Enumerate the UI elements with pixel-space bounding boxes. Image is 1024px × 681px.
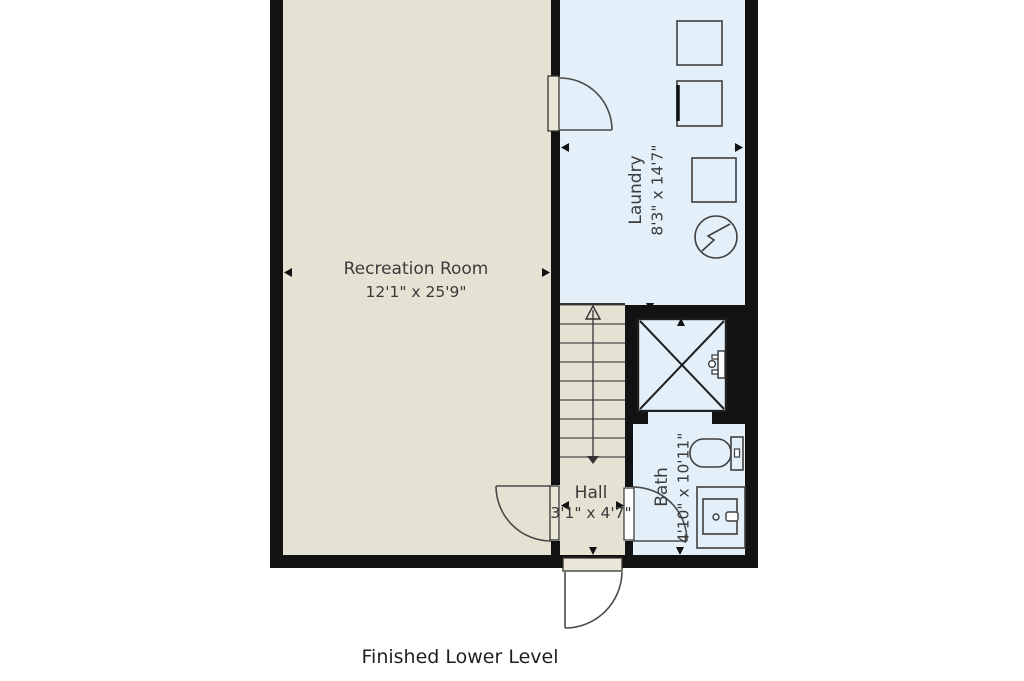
- recreation-room-dims: 12'1" x 25'9": [366, 283, 467, 301]
- floorplan-page: Recreation Room 12'1" x 25'9" Laundry 8'…: [0, 0, 1024, 681]
- sink-vanity-icon: [697, 487, 745, 548]
- recreation-room-label: Recreation Room: [344, 259, 489, 279]
- wall-stair-bath-lower: [625, 541, 633, 555]
- floorplan-svg: Recreation Room 12'1" x 25'9" Laundry 8'…: [0, 0, 1024, 681]
- wall-stair-bath-upper: [625, 318, 633, 487]
- wall-left: [270, 0, 283, 568]
- door-exterior-slab: [563, 558, 622, 571]
- shower-entry-opening: [648, 412, 712, 424]
- wall-divider-upper: [551, 0, 560, 77]
- laundry-room-label: Laundry: [626, 155, 646, 224]
- hall-label: Hall: [575, 483, 608, 503]
- door-exterior: [563, 558, 622, 628]
- door-laundry-slab: [548, 76, 559, 131]
- hall-dims: 3'1" x 4'7": [550, 504, 631, 522]
- wall-right: [745, 0, 758, 568]
- laundry-room-dims: 8'3" x 14'7": [649, 144, 667, 235]
- wall-laundry-bottom: [625, 305, 745, 318]
- door-exterior-swing-arc: [565, 572, 622, 628]
- wall-bottom: [270, 555, 758, 568]
- plan-caption: Finished Lower Level: [362, 646, 559, 668]
- bath-label: Bath: [652, 467, 672, 507]
- wall-divider-mid: [551, 130, 560, 485]
- wall-divider-lower: [551, 541, 560, 555]
- toilet-icon: [690, 437, 743, 470]
- bath-dims: 4'10" x 10'11": [675, 433, 693, 544]
